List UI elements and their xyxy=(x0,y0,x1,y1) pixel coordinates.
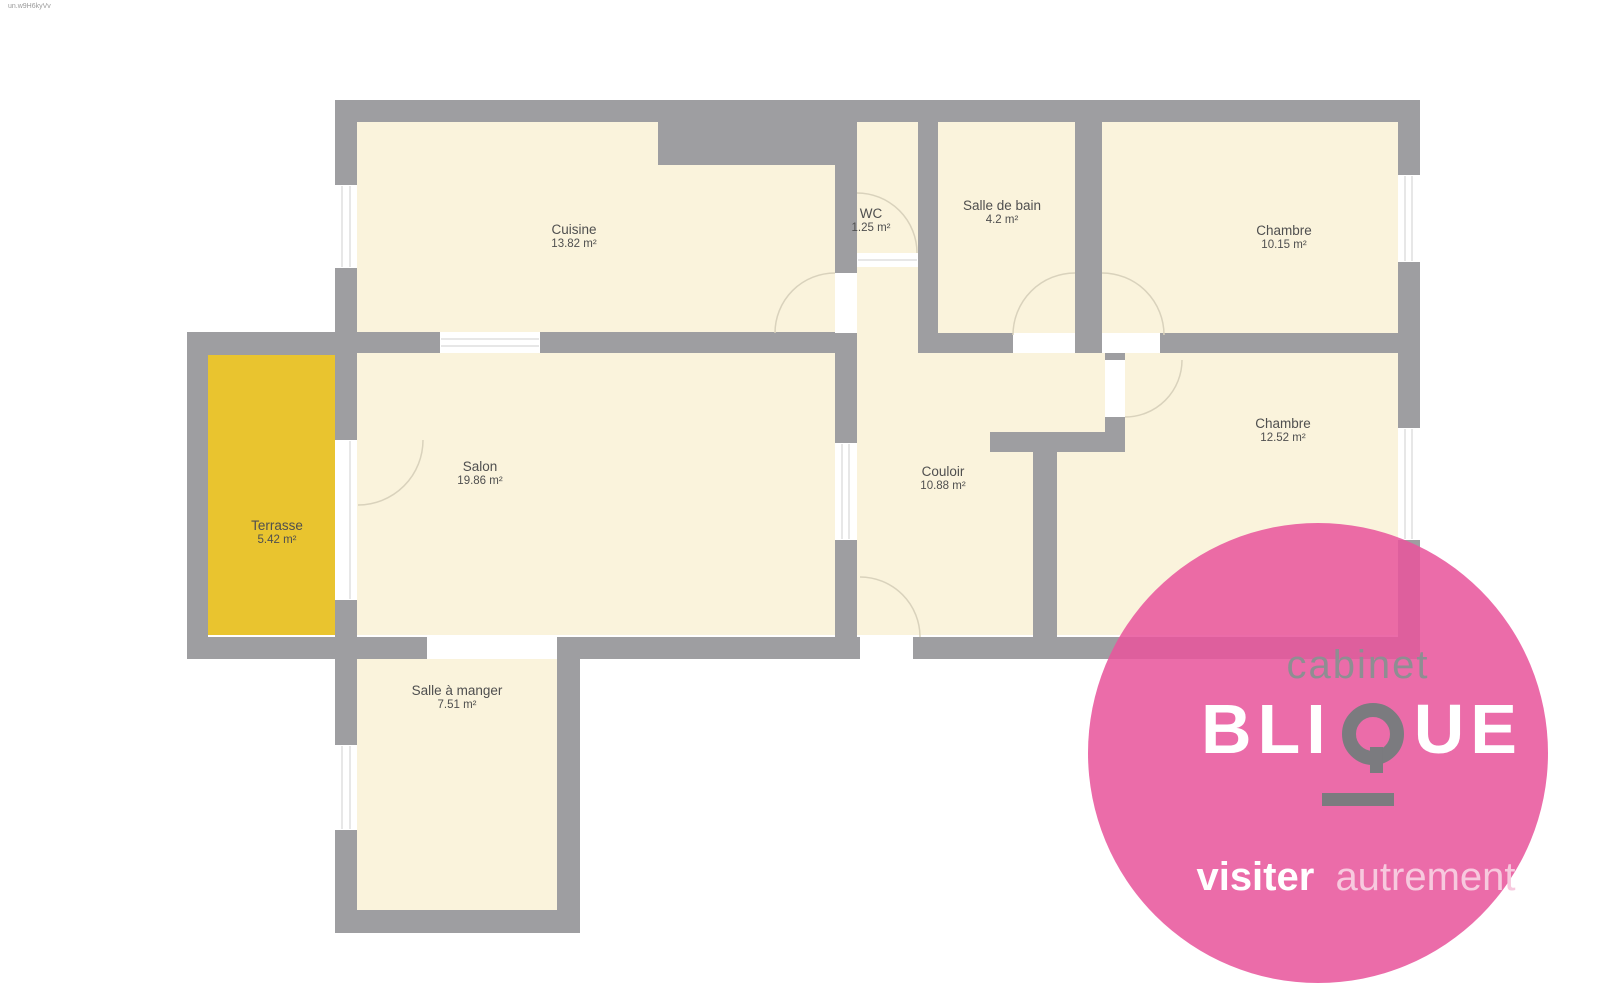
door-salle-de-bain xyxy=(1013,333,1075,353)
door-chambre-2 xyxy=(1105,360,1125,417)
room-name: Chambre xyxy=(1255,416,1311,431)
window-salle-a-manger-left xyxy=(335,745,357,830)
window-chambre-1-right xyxy=(1398,175,1420,262)
room-label-terrasse: Terrasse 5.42 m² xyxy=(251,518,303,548)
room-chambre-1-floor xyxy=(1102,122,1398,335)
room-name: Salle à manger xyxy=(412,683,503,698)
door-cuisine-couloir xyxy=(835,273,857,333)
room-area: 13.82 m² xyxy=(551,237,596,252)
room-name: Terrasse xyxy=(251,518,303,533)
wall-couloir-left xyxy=(835,122,857,659)
room-label-chambre-2: Chambre 12.52 m² xyxy=(1255,416,1311,446)
room-area: 10.15 m² xyxy=(1256,238,1312,253)
wall-sdb-chambre-divider xyxy=(1075,122,1102,353)
room-label-cuisine: Cuisine 13.82 m² xyxy=(551,222,596,252)
wordmark-left: BLI xyxy=(1201,689,1332,769)
door-entry xyxy=(860,637,913,659)
room-label-wc: WC 1.25 m² xyxy=(852,206,891,236)
brand-wordmark: BLI UE xyxy=(1201,689,1523,769)
room-name: WC xyxy=(852,206,891,221)
door-salon-couloir xyxy=(835,443,857,540)
wall-top xyxy=(335,100,1420,122)
room-name: Salon xyxy=(457,459,502,474)
brand-logo-circle: cabinet BLI UE visiter autrement xyxy=(1088,523,1548,983)
room-area: 5.42 m² xyxy=(251,533,303,548)
brand-tagline: visiter autrement xyxy=(1196,855,1515,900)
room-label-salle-a-manger: Salle à manger 7.51 m² xyxy=(412,683,503,713)
room-salon-floor xyxy=(357,353,835,635)
opening-salon-salle-a-manger xyxy=(427,637,557,659)
room-area: 7.51 m² xyxy=(412,698,503,713)
wall-salle-a-manger-bottom xyxy=(335,910,580,933)
wall-terrasse-left xyxy=(187,332,208,659)
room-name: Chambre xyxy=(1256,223,1312,238)
window-cuisine-salon xyxy=(440,332,540,353)
wordmark-right: UE xyxy=(1414,689,1523,769)
wall-salle-de-bain-bottom xyxy=(918,333,1013,353)
wall-salle-a-manger-right xyxy=(557,655,580,933)
room-wc-floor xyxy=(857,122,918,267)
window-cuisine-left xyxy=(335,185,357,268)
room-name: Salle de bain xyxy=(963,198,1041,213)
room-area: 10.88 m² xyxy=(920,479,965,494)
room-salle-de-bain-floor xyxy=(938,122,1075,335)
wall-t-vertical xyxy=(1033,432,1057,659)
room-area: 1.25 m² xyxy=(852,221,891,236)
q-underline-bar xyxy=(1322,793,1394,806)
wall-cuisine-salon xyxy=(335,332,857,353)
room-label-salon: Salon 19.86 m² xyxy=(457,459,502,489)
floorplan-page: un.w9H6kyVv xyxy=(0,0,1600,1008)
stylized-q-lightbulb-icon xyxy=(1342,703,1404,765)
window-chambre-2-right xyxy=(1398,428,1420,540)
room-label-salle-de-bain: Salle de bain 4.2 m² xyxy=(963,198,1041,228)
wall-cuisine-notch xyxy=(658,122,835,165)
room-name: Couloir xyxy=(920,464,965,479)
room-area: 12.52 m² xyxy=(1255,431,1311,446)
room-label-chambre-1: Chambre 10.15 m² xyxy=(1256,223,1312,253)
door-terrasse-salon xyxy=(335,440,357,600)
room-terrasse-floor xyxy=(208,355,335,635)
room-area: 19.86 m² xyxy=(457,474,502,489)
room-label-couloir: Couloir 10.88 m² xyxy=(920,464,965,494)
room-area: 4.2 m² xyxy=(963,213,1041,228)
wall-chambre-1-bottom xyxy=(1160,333,1398,353)
wall-terrasse-top xyxy=(187,332,357,355)
wall-wc-right xyxy=(918,122,938,353)
door-chambre-1 xyxy=(1102,333,1160,353)
room-name: Cuisine xyxy=(551,222,596,237)
brand-name-top: cabinet xyxy=(1287,643,1430,688)
tagline-word-1: visiter xyxy=(1196,855,1314,899)
tagline-word-2: autrement xyxy=(1335,855,1515,899)
